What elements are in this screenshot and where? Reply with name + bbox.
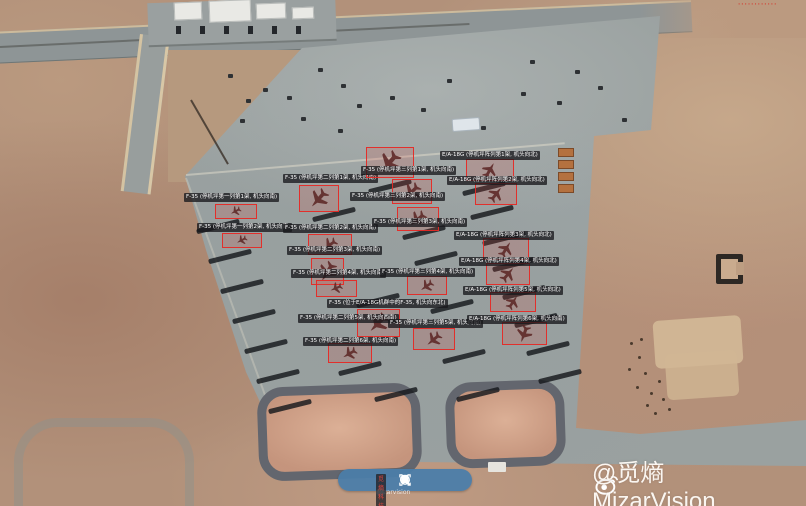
aircraft-bbox [407, 276, 447, 295]
debris-speckle [640, 338, 643, 341]
debris-speckle [650, 392, 653, 395]
aircraft-bbox [328, 343, 372, 363]
aircraft-bbox [490, 292, 536, 312]
aircraft-annotation-label: F-35 (停机坪第二列第5架, 机头向西南) [298, 314, 399, 323]
vehicle-dot [228, 74, 233, 78]
aircraft-bbox [475, 183, 517, 205]
sunshade-shadow-bar [538, 369, 582, 384]
vehicle-dot [341, 84, 346, 88]
aircraft-annotation-label: F-35 (停机坪第二列第6架, 机头向南) [303, 337, 398, 346]
sunshade-shadow-bar [374, 387, 418, 402]
vehicle-dot [240, 119, 245, 123]
sunshade-shadow-bar [244, 339, 288, 354]
debris-speckle [630, 342, 633, 345]
vehicle-dot [318, 68, 323, 72]
vehicle-dot [390, 96, 395, 100]
sunshade-shadow-bar [268, 399, 312, 414]
sunshade-shadow-bar [256, 369, 300, 384]
corner-stamp: ············ [738, 1, 777, 8]
vehicle-dot [263, 88, 268, 92]
aircraft-bbox [222, 233, 262, 248]
aircraft-annotation-label: E/A-18G (停机坪阵列第2架, 机头向北) [447, 176, 547, 185]
aircraft-annotation-label: F-35 (停机坪第二列第2架, 机头向南) [283, 224, 378, 233]
aircraft-annotation-label: E/A-18G (停机坪阵列第3架, 机头向北) [454, 231, 554, 240]
vehicle-dot [530, 60, 535, 64]
aircraft-annotation-label: F-35 (位于E/A-18G机群中的F-35, 机头向东北) [327, 299, 448, 308]
aircraft-bbox [486, 263, 530, 285]
sunshade-shadow-bar [232, 309, 276, 324]
vehicle-dot [557, 101, 562, 105]
sunshade-shadow-bar [414, 251, 458, 266]
aircraft-bbox [215, 204, 257, 219]
debris-speckle [654, 412, 657, 415]
debris-speckle [638, 356, 641, 359]
debris-speckle [628, 368, 631, 371]
aircraft-annotation-label: F-35 (停机坪第三列第4架, 机头向南) [380, 268, 475, 277]
debris-speckle [668, 408, 671, 411]
weibo-handle: @觅熵MizarVision [592, 453, 716, 506]
aircraft-annotation-label: E/A-18G (停机坪阵列第4架, 机头向北) [459, 257, 559, 266]
vehicle-dot [421, 108, 426, 112]
aircraft-bbox [413, 328, 455, 350]
debris-speckle [646, 404, 649, 407]
aircraft-bbox [316, 280, 357, 297]
aircraft-annotation-label: F-35 (停机坪第二列第4架, 机头向南) [291, 269, 386, 278]
debris-speckle [658, 380, 661, 383]
aircraft-bbox [502, 322, 547, 345]
aircraft-annotation-label: F-35 (停机坪第三列第2架, 机头向南) [350, 192, 445, 201]
vehicle-dot [521, 92, 526, 96]
aircraft-bbox [299, 185, 339, 212]
debris-speckle [662, 398, 665, 401]
vehicle-dot [246, 99, 251, 103]
aircraft-annotation-label: F-35 (停机坪第一列第2架, 机头向南) [197, 223, 292, 232]
aircraft-annotation-label: F-35 (停机坪第二列第1架, 机头向南) [283, 174, 378, 183]
aircraft-annotation-label: F-35 (停机坪第二列第3架, 机头向南) [287, 246, 382, 255]
sunshade-shadow-bar [220, 279, 264, 294]
vehicle-dot [622, 118, 627, 122]
vehicle-dot [287, 96, 292, 100]
satellite-image-viewport[interactable]: F-35 (停机坪第一列第1架, 机头向南)F-35 (停机坪第一列第2架, 机… [0, 0, 806, 506]
vehicle-dot [598, 86, 603, 90]
sunshade-shadow-bar [456, 387, 500, 402]
vehicle-dot [575, 70, 580, 74]
vehicle-dot [357, 104, 362, 108]
vehicle-dot [338, 129, 343, 133]
vehicle-dot [481, 126, 486, 130]
aircraft-annotation-label: E/A-18G (停机坪阵列第1架, 机头向北) [440, 151, 540, 160]
aircraft-annotation-label: F-35 (停机坪第三列第3架, 机头向南) [372, 218, 467, 227]
annotation-layer: F-35 (停机坪第一列第1架, 机头向南)F-35 (停机坪第一列第2架, 机… [0, 0, 806, 506]
mini-brand-cn: 觅熵科技 [376, 474, 386, 506]
vehicle-dot [447, 79, 452, 83]
aircraft-annotation-label: E/A-18G (停机坪阵列第6架, 机头向南) [467, 315, 567, 324]
debris-speckle [636, 386, 639, 389]
aircraft-annotation-label: E/A-18G (停机坪阵列第5架, 机头向北) [463, 286, 563, 295]
debris-speckle [644, 372, 647, 375]
vehicle-dot [301, 117, 306, 121]
aircraft-annotation-label: F-35 (停机坪第一列第1架, 机头向南) [184, 193, 279, 202]
bookmark-icon[interactable] [399, 474, 411, 486]
